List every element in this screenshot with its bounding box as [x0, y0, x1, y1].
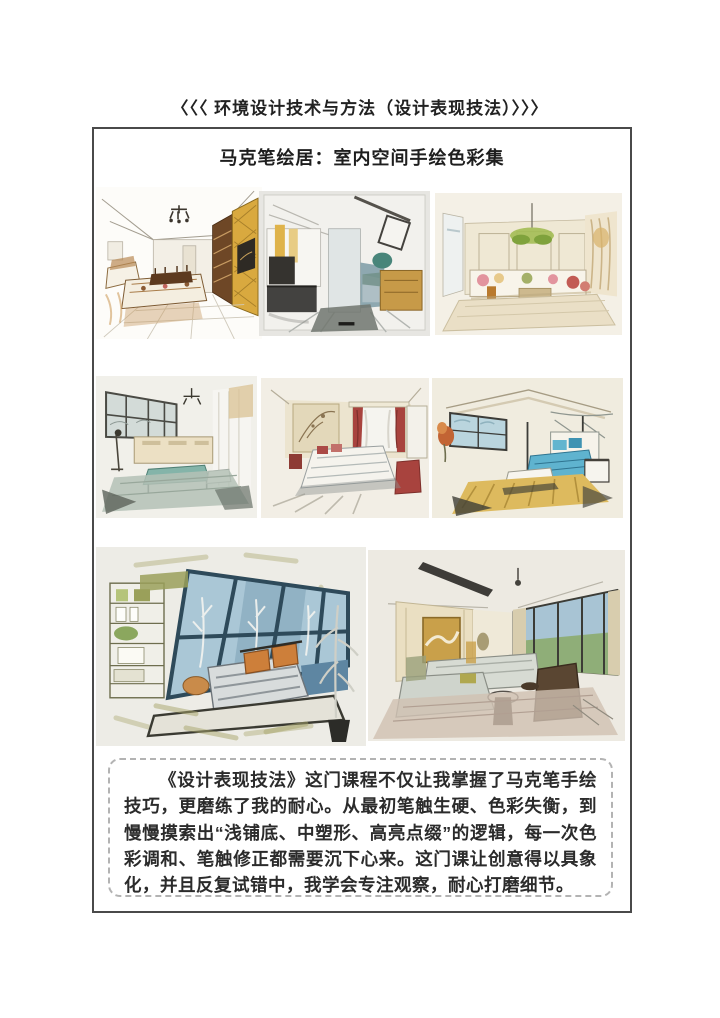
sketch-bedroom-teal-bench	[96, 376, 257, 518]
sketch-bright-living-room	[435, 193, 622, 335]
reflection-text: 《设计表现技法》这门课程不仅让我掌握了马克笔手绘技巧，更磨练了我的耐心。从最初笔…	[110, 760, 611, 898]
sketch-lounge-window-wall	[368, 550, 625, 741]
sketch-bedroom-blue-bed	[432, 378, 623, 518]
sketch-modern-living-room	[259, 191, 430, 336]
sketch-bedroom-red-curtains	[261, 378, 429, 518]
reflection-box: 《设计表现技法》这门课程不仅让我掌握了马克笔手绘技巧，更磨练了我的耐心。从最初笔…	[108, 758, 613, 897]
page-title: 〈〈〈 环境设计技术与方法（设计表现技法）〉〉〉	[0, 94, 720, 119]
content-frame: 马克笔绘居：室内空间手绘色彩集	[92, 127, 632, 913]
document-page: 〈〈〈 环境设计技术与方法（设计表现技法）〉〉〉 马克笔绘居：室内空间手绘色彩集	[0, 0, 720, 1018]
sketch-loft-glass-bedroom	[96, 547, 366, 746]
section-heading: 马克笔绘居：室内空间手绘色彩集	[94, 144, 630, 170]
sketch-classic-living-room	[96, 187, 262, 339]
